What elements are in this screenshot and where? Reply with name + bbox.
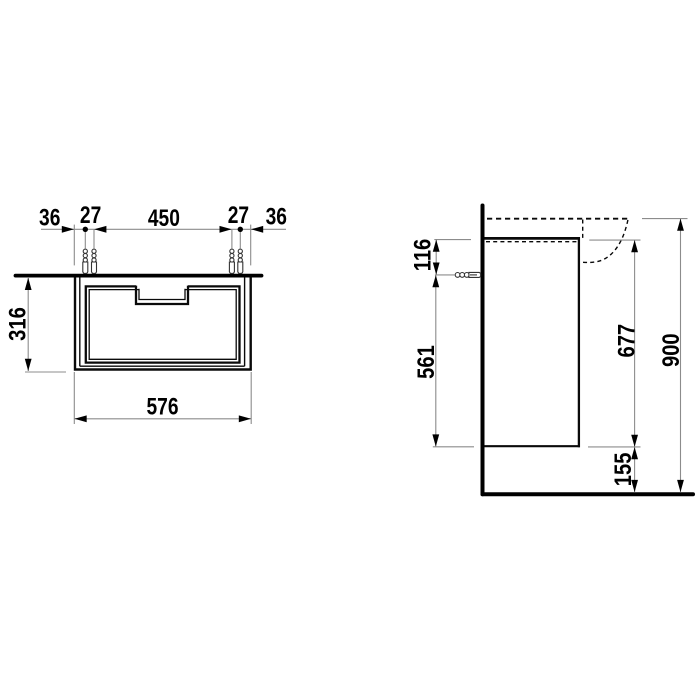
svg-text:155: 155 xyxy=(609,453,636,487)
svg-text:36: 36 xyxy=(39,203,60,231)
svg-text:677: 677 xyxy=(613,324,640,358)
svg-text:116: 116 xyxy=(409,239,436,272)
svg-text:316: 316 xyxy=(4,307,31,341)
svg-text:27: 27 xyxy=(228,201,249,229)
svg-text:561: 561 xyxy=(412,345,439,379)
svg-text:576: 576 xyxy=(146,392,178,420)
svg-text:36: 36 xyxy=(266,202,287,230)
svg-text:900: 900 xyxy=(657,333,684,367)
svg-text:27: 27 xyxy=(80,201,101,229)
svg-text:450: 450 xyxy=(148,204,180,232)
